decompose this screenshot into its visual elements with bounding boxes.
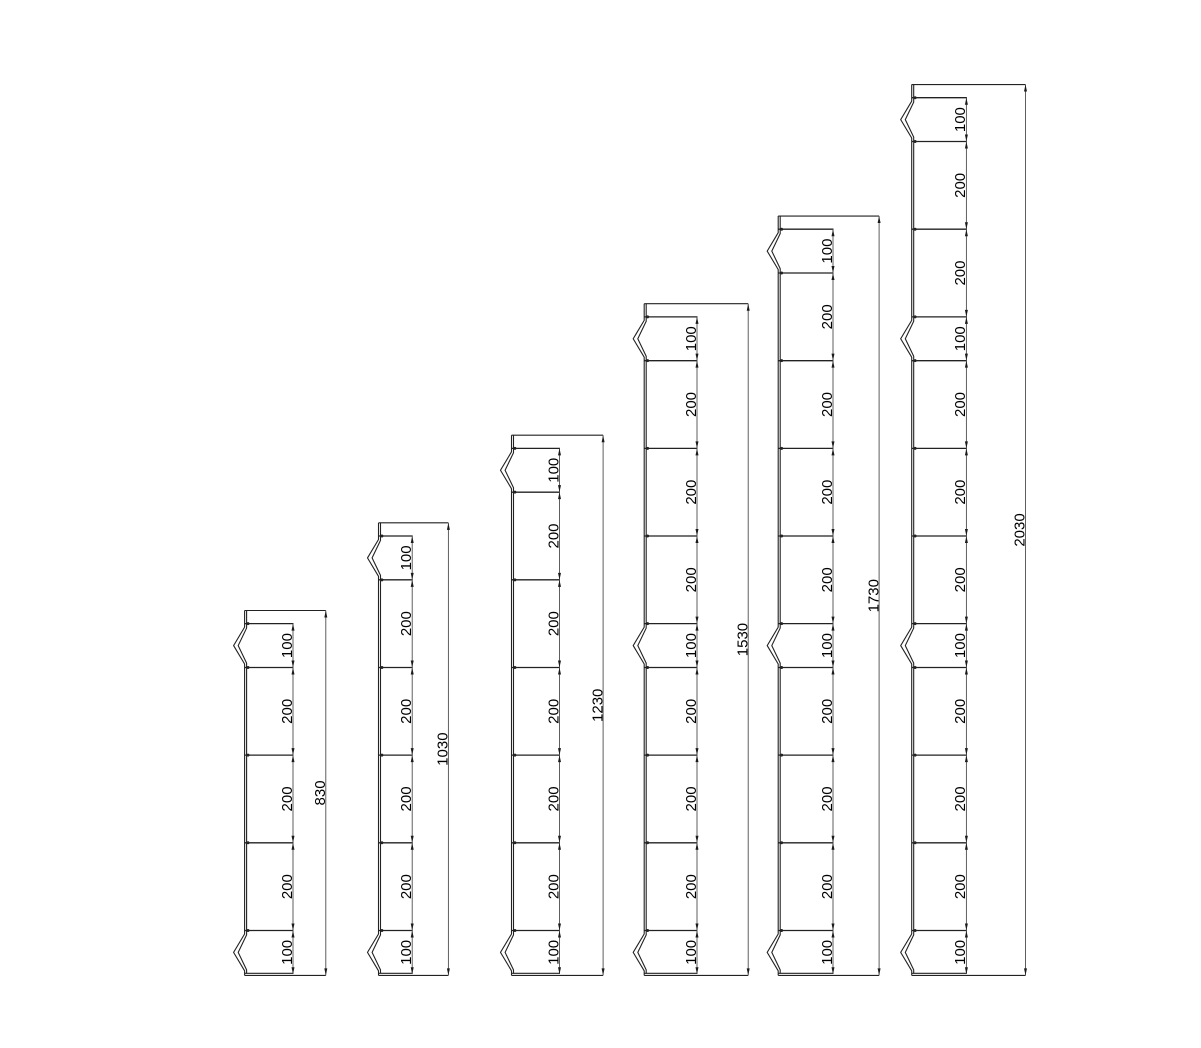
svg-text:200: 200 [683,699,700,724]
svg-text:200: 200 [545,699,562,724]
svg-text:200: 200 [952,261,969,286]
svg-text:200: 200 [545,786,562,811]
svg-text:200: 200 [545,523,562,548]
svg-text:100: 100 [952,107,969,132]
svg-text:1530: 1530 [734,623,751,656]
svg-text:200: 200 [683,392,700,417]
svg-text:200: 200 [819,874,836,899]
svg-text:200: 200 [819,786,836,811]
svg-text:200: 200 [398,874,415,899]
svg-text:200: 200 [683,480,700,505]
svg-text:100: 100 [683,633,700,658]
svg-text:200: 200 [952,392,969,417]
svg-text:100: 100 [952,326,969,351]
svg-text:100: 100 [398,545,415,570]
svg-text:100: 100 [279,633,296,658]
svg-text:1030: 1030 [435,732,452,765]
svg-text:200: 200 [545,611,562,636]
svg-text:200: 200 [952,786,969,811]
svg-text:100: 100 [819,239,836,264]
svg-text:100: 100 [545,940,562,965]
svg-text:200: 200 [398,699,415,724]
svg-text:100: 100 [952,940,969,965]
svg-text:200: 200 [952,173,969,198]
svg-text:1730: 1730 [865,579,882,612]
svg-text:200: 200 [398,611,415,636]
svg-text:100: 100 [279,940,296,965]
svg-text:200: 200 [819,699,836,724]
svg-text:200: 200 [952,567,969,592]
svg-text:100: 100 [683,940,700,965]
svg-text:200: 200 [279,699,296,724]
svg-text:100: 100 [819,633,836,658]
svg-text:200: 200 [545,874,562,899]
svg-text:200: 200 [683,567,700,592]
svg-text:100: 100 [545,458,562,483]
svg-text:100: 100 [398,940,415,965]
svg-text:100: 100 [683,326,700,351]
svg-text:100: 100 [819,940,836,965]
svg-text:200: 200 [398,786,415,811]
svg-text:1230: 1230 [589,689,606,722]
svg-text:200: 200 [279,874,296,899]
svg-text:100: 100 [952,633,969,658]
svg-text:200: 200 [819,304,836,329]
svg-text:2030: 2030 [1012,513,1029,546]
svg-text:200: 200 [279,786,296,811]
svg-text:200: 200 [819,567,836,592]
svg-text:200: 200 [683,786,700,811]
svg-text:830: 830 [312,780,329,805]
svg-text:200: 200 [952,874,969,899]
svg-text:200: 200 [952,480,969,505]
svg-text:200: 200 [683,874,700,899]
svg-text:200: 200 [819,480,836,505]
svg-text:200: 200 [819,392,836,417]
svg-text:200: 200 [952,699,969,724]
